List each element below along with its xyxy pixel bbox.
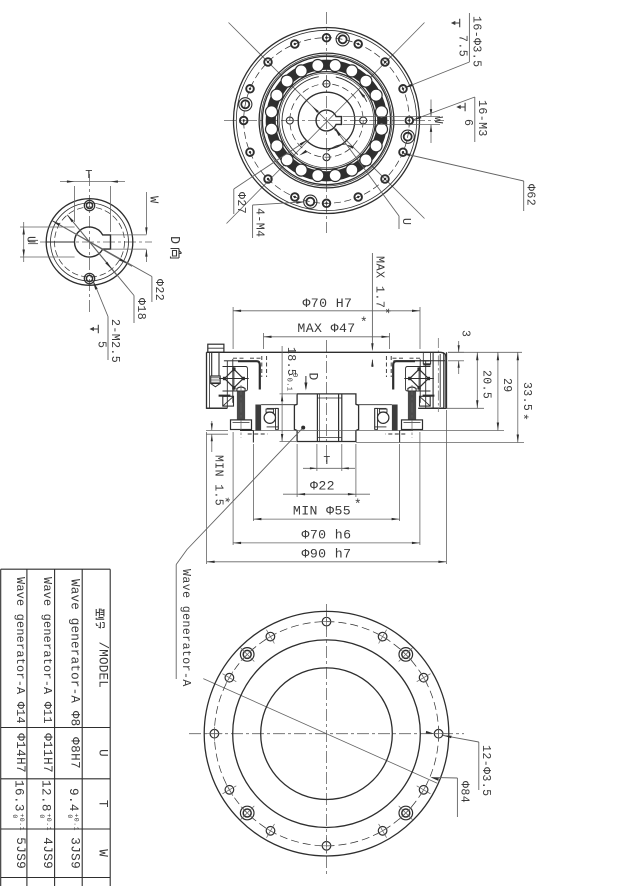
svg-text:MAX 1.7: MAX 1.7 (372, 256, 386, 308)
svg-text:W: W (431, 117, 444, 124)
svg-text:0: 0 (66, 814, 73, 818)
svg-text:2-M2.5: 2-M2.5 (108, 319, 121, 363)
svg-text:16-Φ3.5: 16-Φ3.5 (469, 16, 482, 68)
svg-text:29: 29 (500, 378, 513, 393)
svg-text:MAX Φ47: MAX Φ47 (297, 321, 355, 336)
svg-text:MIN Φ55: MIN Φ55 (293, 504, 351, 519)
svg-text:Φ8H7: Φ8H7 (68, 737, 82, 769)
svg-text:*: * (354, 497, 362, 512)
svg-text:W: W (95, 849, 109, 857)
svg-text:T: T (95, 800, 109, 808)
svg-text:16-M3: 16-M3 (475, 100, 488, 137)
svg-text:Wave generator-A Φ8: Wave generator-A Φ8 (68, 579, 82, 726)
svg-text:Φ11H7: Φ11H7 (40, 733, 54, 773)
svg-text:3JS9: 3JS9 (68, 837, 82, 869)
svg-text:U: U (24, 236, 38, 244)
svg-text:Wave generator-A Φ14: Wave generator-A Φ14 (13, 577, 27, 724)
svg-text:Φ70 H7: Φ70 H7 (302, 296, 352, 311)
svg-text:33.5: 33.5 (520, 382, 533, 411)
svg-text:20.5: 20.5 (479, 370, 492, 399)
svg-text:Φ18: Φ18 (134, 298, 147, 320)
svg-text:Wave generator-A: Wave generator-A (179, 569, 192, 687)
svg-text:Φ22: Φ22 (310, 479, 335, 494)
svg-text:/MODEL: /MODEL (95, 642, 109, 689)
svg-text:16.3: 16.3 (12, 780, 26, 812)
svg-text:T: T (85, 168, 93, 182)
svg-text:6: 6 (461, 119, 474, 126)
svg-text:5: 5 (94, 341, 107, 348)
svg-text:4JS9: 4JS9 (40, 837, 54, 869)
svg-text:Φ70 h6: Φ70 h6 (302, 528, 352, 543)
svg-text:0: 0 (11, 814, 18, 818)
svg-text:Φ14H7: Φ14H7 (13, 733, 27, 773)
svg-text:0: 0 (38, 814, 45, 818)
svg-text:18.5: 18.5 (284, 347, 297, 376)
svg-text:U: U (95, 749, 109, 757)
svg-text:*: * (216, 496, 231, 504)
svg-text:D: D (306, 373, 321, 381)
svg-text:Φ62: Φ62 (524, 184, 537, 206)
svg-text:12-Φ3.5: 12-Φ3.5 (479, 745, 492, 797)
svg-text:T: T (323, 455, 330, 468)
svg-text:5JS9: 5JS9 (13, 837, 27, 869)
svg-text:9.4: 9.4 (66, 788, 80, 812)
svg-text:7.5: 7.5 (456, 35, 469, 57)
svg-text:*: * (360, 315, 368, 330)
svg-text:Φ90 h7: Φ90 h7 (302, 546, 352, 561)
svg-text:Φ27: Φ27 (234, 192, 247, 214)
svg-text:12.8: 12.8 (39, 780, 53, 812)
svg-text:Φ22: Φ22 (152, 279, 165, 301)
svg-text:*: * (377, 307, 392, 315)
svg-text:D: D (166, 236, 181, 245)
svg-text:Φ84: Φ84 (457, 781, 470, 803)
svg-text:-0.1: -0.1 (285, 373, 293, 391)
svg-text:Wave generator-A Φ11: Wave generator-A Φ11 (40, 577, 54, 724)
svg-text:W: W (146, 196, 160, 204)
svg-text:U: U (399, 218, 412, 225)
svg-text:3: 3 (459, 330, 472, 337)
svg-text:4-M4: 4-M4 (253, 208, 266, 237)
svg-text:*: * (515, 413, 530, 421)
